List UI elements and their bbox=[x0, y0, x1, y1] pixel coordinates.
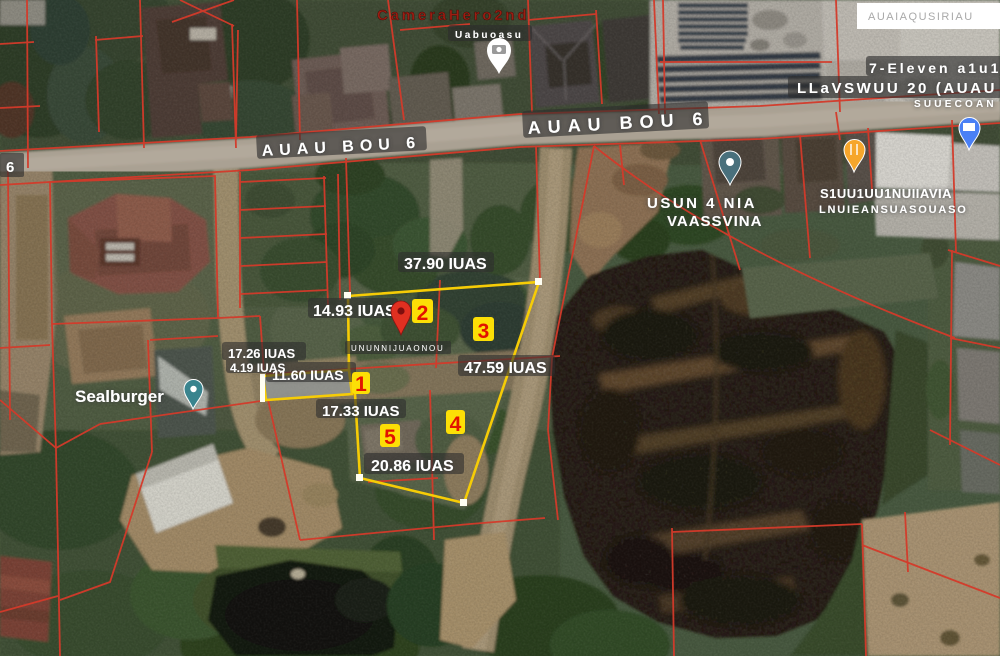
svg-text:USUN 4 NIA: USUN 4 NIA bbox=[647, 195, 757, 212]
svg-text:14.93 IUAS: 14.93 IUAS bbox=[313, 303, 396, 320]
svg-text:Uabuoasu: Uabuoasu bbox=[455, 30, 523, 41]
svg-text:37.90 IUAS: 37.90 IUAS bbox=[404, 256, 487, 273]
svg-text:VAASSVINA: VAASSVINA bbox=[667, 213, 762, 230]
svg-text:17.26 IUAS: 17.26 IUAS bbox=[228, 346, 296, 361]
svg-text:Sealburger: Sealburger bbox=[75, 387, 164, 406]
svg-text:11.60 IUAS: 11.60 IUAS bbox=[272, 367, 344, 383]
svg-text:LLaVSWUU 20 (AUAU: LLaVSWUU 20 (AUAU bbox=[797, 80, 997, 97]
svg-text:17.33 IUAS: 17.33 IUAS bbox=[322, 403, 400, 420]
svg-text:1: 1 bbox=[355, 373, 367, 396]
svg-text:3: 3 bbox=[478, 320, 490, 343]
svg-text:CameraHero2nd: CameraHero2nd bbox=[377, 7, 529, 24]
svg-text:LNUIEANSUASOUASO: LNUIEANSUASOUASO bbox=[819, 204, 968, 216]
svg-text:7-Eleven a1u1: 7-Eleven a1u1 bbox=[869, 60, 1000, 76]
svg-text:AUAIAQUSIRIAU: AUAIAQUSIRIAU bbox=[868, 11, 974, 23]
svg-text:6: 6 bbox=[6, 159, 14, 176]
svg-text:2: 2 bbox=[417, 302, 429, 325]
svg-text:S1UU1UU1NUIIAVIA: S1UU1UU1NUIIAVIA bbox=[820, 186, 952, 201]
svg-text:20.86 IUAS: 20.86 IUAS bbox=[371, 458, 454, 475]
svg-text:5: 5 bbox=[384, 426, 396, 449]
svg-text:UNUNNIJUAONOU: UNUNNIJUAONOU bbox=[351, 344, 445, 353]
svg-text:SUUECOAN: SUUECOAN bbox=[914, 99, 997, 110]
svg-text:4: 4 bbox=[450, 413, 462, 436]
svg-text:47.59 IUAS: 47.59 IUAS bbox=[464, 360, 547, 377]
